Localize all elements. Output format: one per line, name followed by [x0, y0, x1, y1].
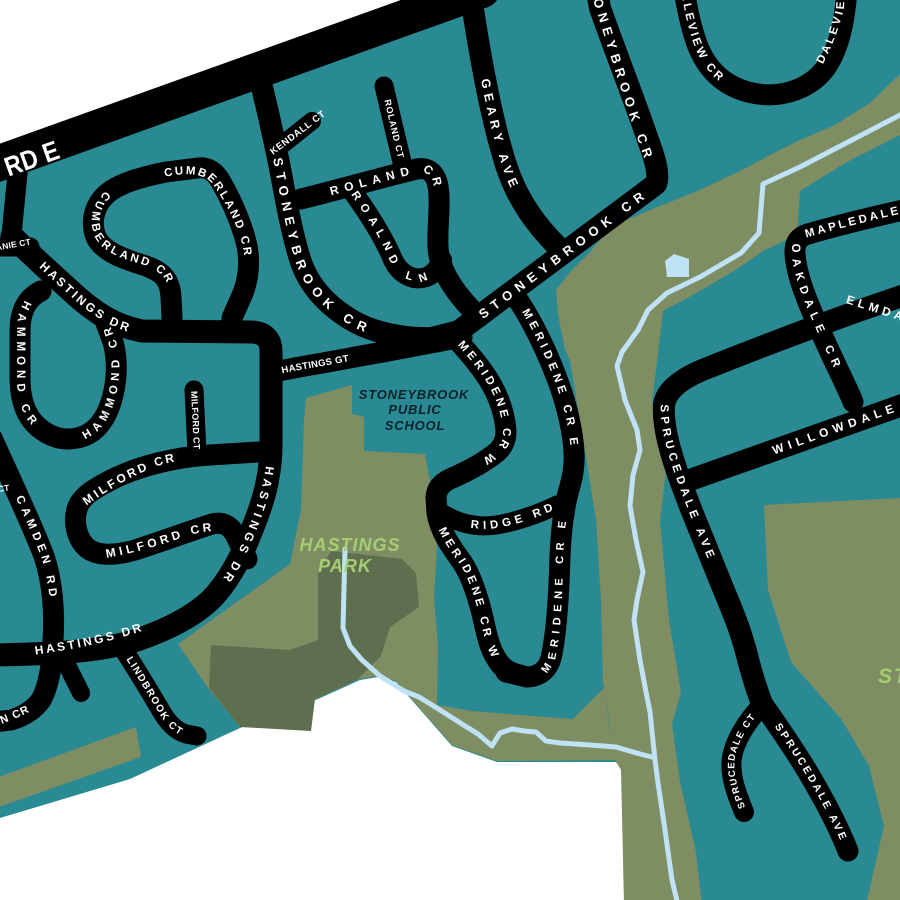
svg-text:HASTINGS: HASTINGS	[299, 535, 400, 555]
svg-text:PUBLIC: PUBLIC	[388, 402, 441, 417]
svg-text:STONEYBROOK: STONEYBROOK	[359, 387, 470, 402]
svg-text:STON: STON	[878, 665, 900, 688]
svg-text:SCHOOL: SCHOOL	[385, 418, 445, 433]
svg-text:PARK: PARK	[318, 556, 373, 576]
